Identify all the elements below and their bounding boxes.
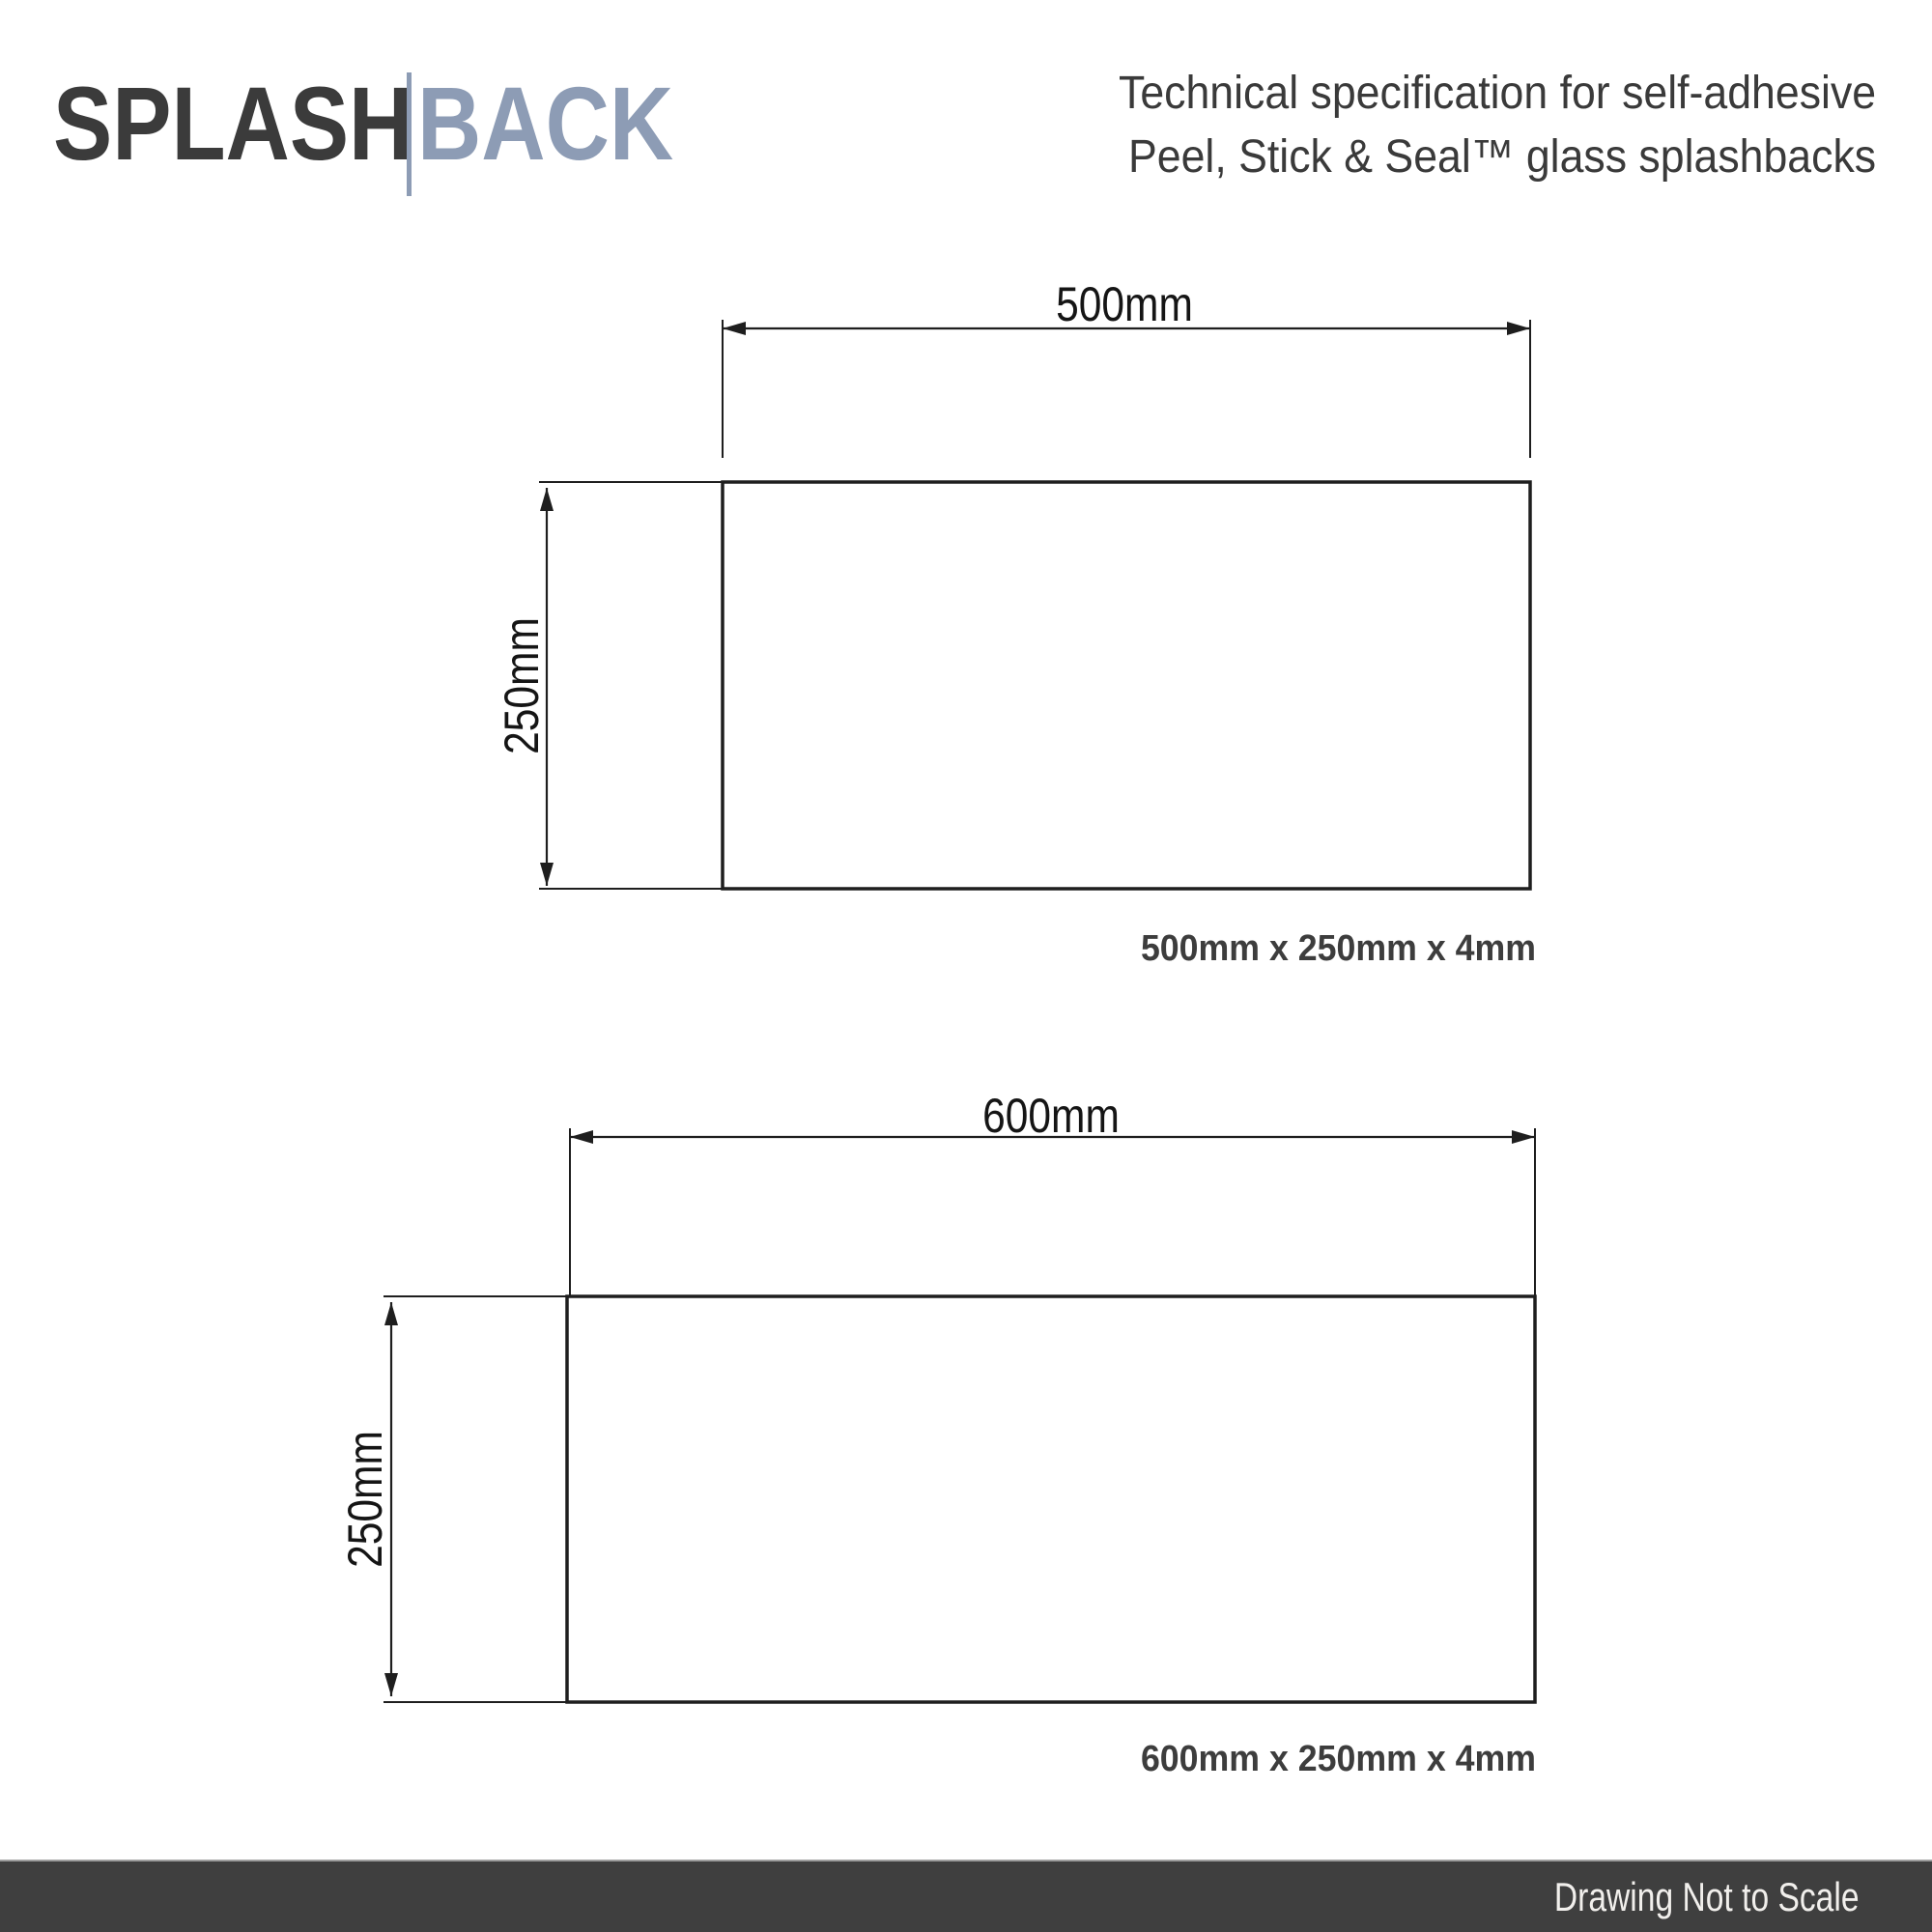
arrow-up-icon [540,488,554,511]
panel-caption-600: 600mm x 250mm x 4mm [810,1737,1536,1781]
drawing-500x250 [539,320,1530,889]
arrow-left-icon [723,322,746,335]
height-dimension-label-250-a: 250mm [497,538,546,834]
arrow-right-icon [1512,1130,1535,1144]
width-dimension-label-500: 500mm [960,280,1289,328]
footer-bar: Drawing Not to Scale [0,1860,1932,1932]
glass-panel-outline-600 [567,1296,1535,1702]
glass-panel-outline-500 [723,482,1530,889]
width-dimension-label-600: 600mm [887,1092,1215,1140]
panel-caption-500: 500mm x 250mm x 4mm [810,926,1536,971]
spec-sheet-page: SPLASH BACK Technical specification for … [0,0,1932,1932]
height-dimension-label-250-b: 250mm [341,1351,389,1647]
arrow-down-icon [384,1673,398,1696]
arrow-right-icon [1507,322,1530,335]
arrow-down-icon [540,863,554,886]
not-to-scale-note: Drawing Not to Scale [1554,1877,1860,1918]
arrow-left-icon [570,1130,593,1144]
drawing-600x250 [384,1128,1535,1702]
arrow-up-icon [384,1302,398,1325]
